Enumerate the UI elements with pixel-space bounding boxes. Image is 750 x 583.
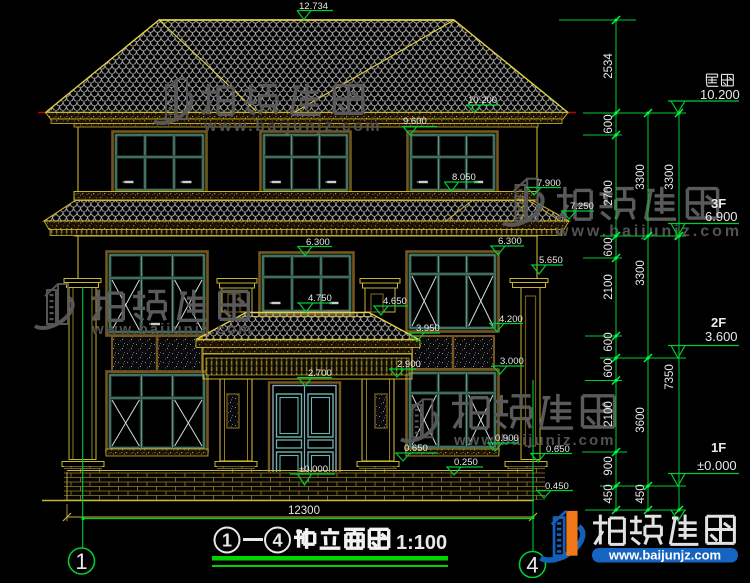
svg-text:www.baijunjz.com: www.baijunjz.com — [608, 548, 721, 563]
svg-text:10.200: 10.200 — [700, 87, 740, 102]
svg-text:4: 4 — [526, 553, 538, 578]
svg-text:1: 1 — [222, 531, 232, 551]
svg-text:0.250: 0.250 — [454, 457, 478, 468]
svg-text:7350: 7350 — [664, 364, 676, 390]
svg-text:450: 450 — [603, 484, 615, 503]
svg-text:±0.000: ±0.000 — [299, 464, 328, 475]
svg-text:2F: 2F — [711, 315, 726, 330]
svg-text:www.baijunjz.com: www.baijunjz.com — [91, 321, 253, 338]
svg-text:4.650: 4.650 — [383, 296, 407, 307]
svg-text:www.baijunjz.com: www.baijunjz.com — [453, 432, 615, 449]
svg-text:0.900: 0.900 — [495, 433, 519, 444]
svg-text:2.900: 2.900 — [397, 359, 421, 370]
svg-text:12300: 12300 — [288, 505, 320, 517]
svg-text:600: 600 — [603, 358, 615, 377]
svg-text:3.000: 3.000 — [500, 356, 524, 367]
svg-text:www.baijunjz.com: www.baijunjz.com — [555, 223, 742, 240]
svg-text:450: 450 — [635, 484, 647, 503]
svg-text:7.250: 7.250 — [570, 201, 594, 212]
svg-text:600: 600 — [603, 237, 615, 256]
svg-text:5.650: 5.650 — [539, 255, 563, 266]
svg-text:3600: 3600 — [635, 407, 647, 433]
svg-text:2700: 2700 — [603, 180, 615, 206]
svg-text:2100: 2100 — [603, 274, 615, 300]
svg-text:600: 600 — [603, 332, 615, 351]
svg-text:3300: 3300 — [664, 164, 676, 190]
svg-text:1F: 1F — [711, 440, 726, 455]
svg-text:4: 4 — [272, 531, 282, 551]
svg-text:600: 600 — [603, 114, 615, 133]
svg-text:3.600: 3.600 — [705, 329, 738, 344]
svg-text:±0.000: ±0.000 — [697, 458, 737, 473]
svg-text:3300: 3300 — [635, 260, 647, 286]
svg-text:9.600: 9.600 — [403, 116, 427, 127]
svg-text:6.900: 6.900 — [705, 209, 738, 224]
svg-text:1: 1 — [75, 549, 87, 574]
svg-text:900: 900 — [603, 456, 615, 475]
svg-text:2100: 2100 — [603, 401, 615, 427]
svg-text:0.650: 0.650 — [404, 443, 428, 454]
svg-text:10.200: 10.200 — [468, 95, 497, 106]
svg-text:1:100: 1:100 — [396, 532, 447, 554]
svg-text:2534: 2534 — [603, 53, 615, 79]
svg-text:6.300: 6.300 — [498, 236, 522, 247]
svg-text:3300: 3300 — [635, 164, 647, 190]
svg-text:www.baijunjz.com: www.baijunjz.com — [203, 118, 382, 135]
svg-text:8.050: 8.050 — [452, 172, 476, 183]
svg-text:4.750: 4.750 — [308, 293, 332, 304]
svg-text:3.950: 3.950 — [416, 323, 440, 334]
